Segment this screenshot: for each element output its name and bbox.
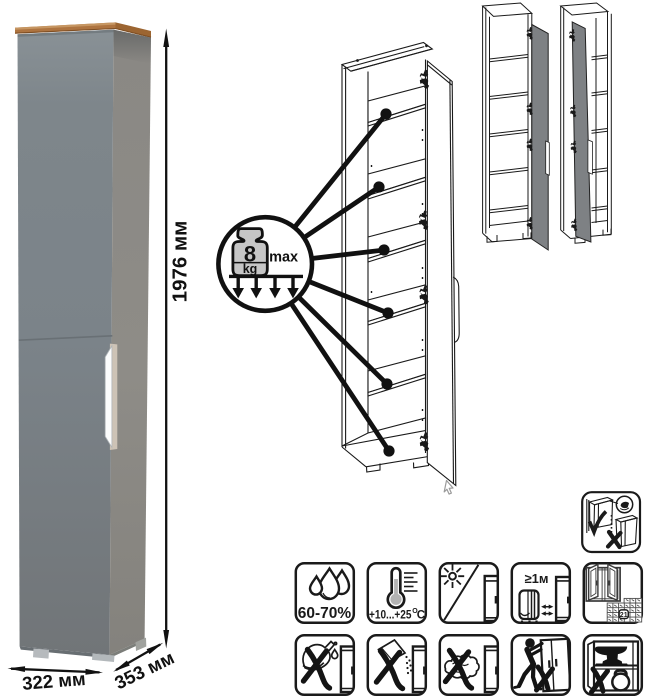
svg-text:≥1м: ≥1м [525, 571, 549, 586]
svg-text:322 мм: 322 мм [21, 668, 86, 694]
svg-text:+10...+25: +10...+25 [369, 610, 412, 622]
svg-text:60-70%: 60-70% [298, 605, 352, 622]
svg-text:C: C [417, 610, 425, 622]
svg-text:kg: kg [243, 262, 258, 276]
svg-text:21: 21 [620, 612, 628, 619]
svg-text:max: max [269, 250, 298, 266]
svg-text:1976 мм: 1976 мм [169, 221, 192, 303]
